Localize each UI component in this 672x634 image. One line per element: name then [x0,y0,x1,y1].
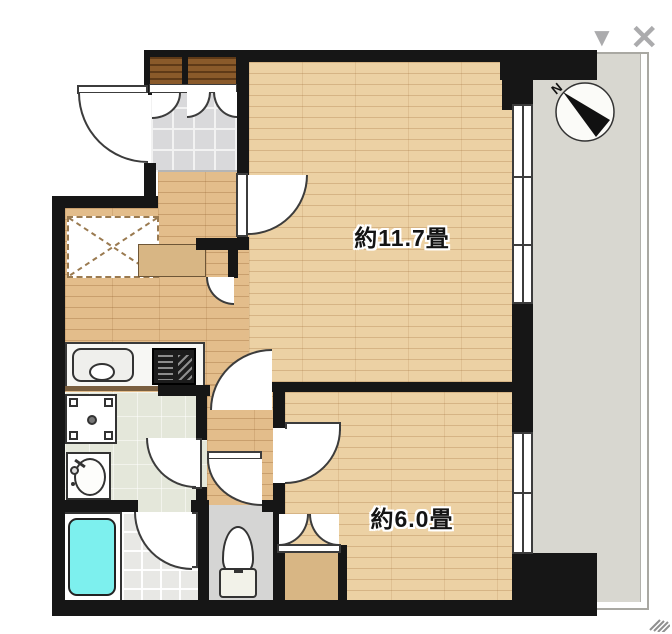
toilet-tank [219,568,257,598]
entrance-door-swing [78,93,148,163]
wall-bottom-right-block [512,553,597,610]
window-tick [514,176,531,178]
wall-washroom-right-upper [196,396,207,440]
wall-toilet-top-nub [262,500,273,512]
collapse-button[interactable]: ▼ [589,22,615,53]
closet-door-line [277,544,341,553]
basin-faucet [70,466,79,475]
wall-bath-divider-left [52,500,138,512]
wash-basin [66,452,111,500]
wall-closet-side [338,545,347,602]
closet-interior [277,550,341,602]
sliding-window-main [512,104,533,304]
window-tick [514,492,531,494]
compass: N [550,77,622,149]
pan-corner [69,398,78,407]
pan-corner [104,431,113,440]
window-mullion [522,106,524,302]
wall-main-second-divider [272,382,515,392]
bathtub [68,518,116,596]
sink-bowl [89,363,115,381]
wall-bath-toilet-divider [198,500,209,602]
sliding-window-second [512,432,533,554]
wall-left-outer [52,196,65,616]
basin-dot [71,482,75,486]
wall-kitchen-top [52,196,158,208]
main-room-door-leaf [236,173,248,237]
floor-plan: N 約11.7畳 約6.0畳 ▼ ✕ [0,0,672,634]
stove-burner [178,355,192,380]
stove-burner [158,355,173,380]
shoe-cabinet-right [188,57,236,84]
entry-step-line [158,170,237,172]
shoe-cabinet-left [150,57,182,85]
pan-drain [87,415,97,425]
close-button[interactable]: ✕ [630,18,659,58]
gas-stove [152,348,196,385]
wall-counter-end [158,385,210,396]
wall-between-windows [512,303,533,433]
washing-machine-pan [65,394,117,444]
pan-corner [104,398,113,407]
wall-second-left-upper [273,392,285,428]
wall-hall-kitchen-nub [228,250,238,278]
wall-hall-kitchen [196,238,249,250]
window-tick [514,244,531,246]
pan-corner [69,431,78,440]
wall-window-top-nub [502,62,533,110]
toilet-handle [234,569,243,573]
room-label-second: 約6.0畳 [337,500,487,534]
room-label-main: 約11.7畳 [322,219,482,253]
watermark-hatch-icon [648,614,670,632]
